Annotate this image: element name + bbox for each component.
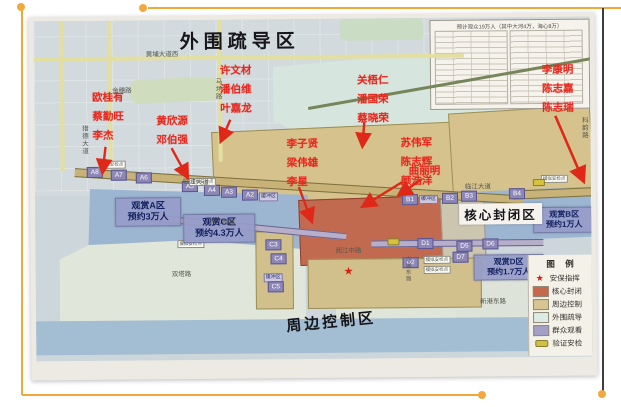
road-label-linjiang-east: 临江大道	[465, 180, 491, 190]
legend-item-label: 周边控制	[552, 299, 582, 310]
road-label-liede: 猎德大道	[78, 125, 88, 155]
marker-c5: C5	[268, 281, 284, 292]
person-name: 欧桂有	[92, 89, 124, 108]
perimeter-control-block-d	[308, 258, 482, 310]
article-image-map-screenshot: { "accent_color": "#f2a93b", "map": { "t…	[0, 0, 621, 407]
person-name: 李子贤	[286, 135, 318, 154]
frame-line-right	[602, 8, 604, 392]
marker-c4: C4	[270, 253, 286, 264]
buffer-zone-a: 缓冲区	[259, 192, 278, 201]
viewing-area-c-capacity: 预约4.3万人	[186, 228, 252, 240]
marker-d1: D1	[417, 238, 433, 249]
crowd-viewing-swatch	[533, 325, 549, 336]
person-name: 蔡晓荣	[357, 109, 389, 128]
legend-item-core: 核心封闭	[533, 285, 592, 299]
zone-title-outer: 外围疏导区	[180, 26, 300, 54]
frame-line-top	[148, 7, 621, 9]
map-photo: 黄埔大道西 金穗路 马场路 猎德大道 科韵路 临江大道 临江大道 阅江西路 阅江…	[28, 13, 597, 381]
legend-item-crowd: 群众观看	[533, 324, 592, 338]
person-name: 苏伟军	[400, 134, 432, 153]
person-name: 黄欣源	[156, 112, 188, 131]
legend-item-perimeter: 周边控制	[533, 298, 592, 312]
legend-title: 图 例	[533, 258, 592, 271]
person-name: 关梧仁	[357, 71, 389, 90]
checkpoint-box-5: 模拟安检点	[424, 266, 451, 274]
core-closed-swatch	[533, 286, 549, 297]
road-label-huangpu: 黄埔大道西	[146, 48, 179, 58]
marker-d7: D7	[452, 252, 468, 263]
name-group-5: 关梧仁 潘国荣 蔡晓荣	[357, 71, 389, 128]
marker-a6: A6	[136, 172, 152, 183]
park-block	[130, 76, 219, 104]
buffer-zone-b: 缓冲区	[419, 195, 438, 204]
name-group-4: 李子贤 梁伟雄 李星	[286, 135, 318, 192]
road-label-shuangta: 双塔路	[172, 268, 192, 278]
road-label-keyun: 科韵路	[578, 117, 588, 140]
name-group-8: 李康明 陈志嘉 陈志瑞	[542, 61, 574, 118]
marker-d5: D5	[456, 241, 472, 252]
viewing-area-label-a: 观赏A区 预约3万人	[115, 197, 181, 226]
person-name: 蔡勤旺	[92, 108, 124, 127]
name-group-2: 黄欣源 邓伯强	[156, 112, 188, 150]
legend-item-outer: 外围疏导	[533, 311, 592, 325]
frame-line-bottom	[22, 394, 478, 396]
name-group-7: 曲丽明	[409, 162, 441, 181]
verification-checkpoint-pill-2	[387, 238, 399, 245]
legend-item-label: 外围疏导	[552, 312, 582, 323]
road-label-linjiang-west: 临江大道	[183, 175, 210, 187]
marker-a7: A7	[111, 170, 127, 181]
road-label-xingang: 新港东路	[480, 295, 506, 305]
zone-title-core: 核心封闭区	[459, 203, 542, 225]
marker-b3: B3	[461, 191, 477, 202]
marker-a3: A3	[221, 187, 237, 198]
person-name: 邓伯强	[156, 131, 188, 150]
legend-item-check: 验证安检	[533, 337, 592, 351]
person-name: 许文材	[220, 62, 252, 81]
person-name: 陈志瑞	[542, 99, 574, 118]
road-label-huizhan: 会展东路	[404, 256, 412, 282]
legend: 图 例 ★ 安保指挥 核心封闭 周边控制 外围疏导 群众观看	[528, 255, 593, 357]
security-zone-map: 黄埔大道西 金穗路 马场路 猎德大道 科韵路 临江大道 临江大道 阅江西路 阅江…	[33, 17, 592, 362]
person-name: 李星	[287, 173, 319, 192]
checkpoint-box-1: 模拟安检点	[99, 161, 126, 169]
person-name: 叶嘉龙	[220, 100, 252, 119]
person-name: 梁伟雄	[287, 154, 319, 173]
name-group-1: 欧桂有 蔡勤旺 李杰	[92, 89, 124, 146]
security-command-star-icon: ★	[344, 265, 354, 278]
legend-item-label: 群众观看	[552, 325, 582, 336]
legend-item-label: 安保指挥	[550, 273, 580, 284]
person-name: 潘伯维	[220, 81, 252, 100]
legend-item-command: ★ 安保指挥	[533, 272, 592, 286]
stats-table-left-half	[435, 30, 509, 105]
frame-line-left	[21, 10, 23, 395]
person-name: 李杰	[92, 127, 124, 146]
viewing-area-a-capacity: 预约3万人	[118, 211, 178, 223]
park-block-2	[339, 18, 423, 41]
marker-b1: B1	[402, 194, 418, 205]
legend-item-label: 核心封闭	[552, 286, 582, 297]
legend-item-label: 验证安检	[552, 338, 582, 349]
marker-b4: B4	[509, 188, 525, 199]
viewing-area-label-b: 观赏B区 预约1万人	[533, 207, 592, 234]
viewing-area-b-capacity: 预约1万人	[536, 220, 592, 230]
star-icon: ★	[533, 274, 547, 283]
outer-guidance-swatch	[533, 312, 549, 323]
marker-b2: B2	[442, 193, 458, 204]
perimeter-control-swatch	[533, 299, 549, 310]
verification-checkpoint-pill-1	[533, 179, 545, 186]
frame-dot-bottom	[478, 391, 486, 399]
frame-dot-top	[139, 4, 147, 12]
verification-check-swatch	[535, 340, 548, 347]
marker-c3: C3	[265, 239, 281, 250]
person-name: 陈志嘉	[542, 80, 574, 99]
person-name: 潘国荣	[357, 90, 389, 109]
marker-d6: D6	[482, 238, 498, 249]
person-name: 曲丽明	[409, 162, 441, 181]
road-label-yuejiang-middle: 阅江中路	[335, 245, 361, 255]
marker-a2: A2	[242, 189, 258, 200]
frame-dot-bottom-right	[598, 390, 606, 398]
viewing-area-a-name: 观赏A区	[118, 200, 178, 212]
viewing-area-b-name: 观赏B区	[536, 210, 592, 220]
person-name: 李康明	[542, 61, 574, 80]
name-group-3: 许文材 潘伯维 叶嘉龙	[220, 62, 252, 119]
checkpoint-box-4: 模拟安检点	[424, 256, 451, 264]
